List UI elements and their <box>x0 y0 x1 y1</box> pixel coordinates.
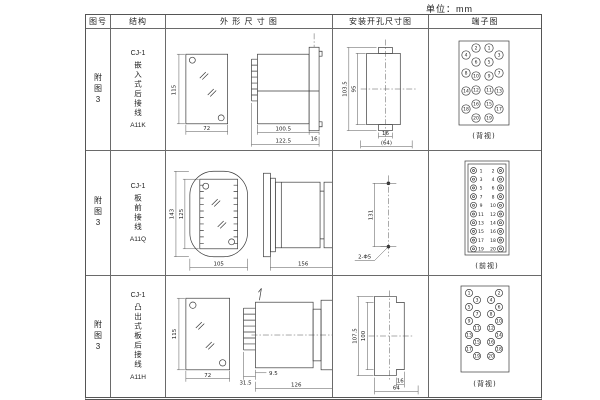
row1-structure-text: 嵌入式后接线 <box>132 61 143 118</box>
terminal-number: 3 <box>480 177 483 183</box>
dim-label: 16 <box>382 131 389 137</box>
row3-terminal-cell: 1 2 3 4 5 6 7 8 9 10 11 12 13 14 15 16 1… <box>429 276 541 397</box>
terminal-number: 11 <box>474 326 480 332</box>
dim-label: 9.5 <box>269 371 278 377</box>
row3-code: A11H <box>130 374 146 381</box>
terminal-number: 17 <box>466 347 472 353</box>
dim-label: 103.5 <box>342 81 348 97</box>
dim-label: 16 <box>397 379 404 385</box>
dim-label: 64 <box>393 385 400 391</box>
terminal-number: 19 <box>486 115 492 121</box>
dim-label: 95 <box>351 85 357 92</box>
row2-outline-cell: 143 125 105 156 110 <box>166 151 333 276</box>
terminal-number: 10 <box>496 319 502 325</box>
header-terminal: 端子图 <box>429 15 541 29</box>
terminal-number: 16 <box>473 101 479 107</box>
terminal-number: 1 <box>488 45 491 51</box>
terminal-number: 17 <box>496 106 502 112</box>
dim-label: 115 <box>172 329 178 339</box>
row2-terminal-drawing: 1 3 5 7 9 11 13 15 17 19 2 4 6 8 10 12 1… <box>429 151 541 276</box>
dim-label: 131 <box>369 209 375 219</box>
terminal-number: 4 <box>465 52 468 58</box>
terminal-number: 4 <box>492 177 495 183</box>
dim-label: 126 <box>291 383 302 389</box>
terminal-number: 1 <box>468 291 471 297</box>
terminal-number: 16 <box>490 229 496 235</box>
terminal-number: 9 <box>488 73 491 79</box>
terminal-number: 3 <box>476 298 479 304</box>
dim-label: 125 <box>179 208 185 218</box>
terminal-number: 6 <box>498 305 501 311</box>
dim-label: 31.5 <box>239 381 251 387</box>
row3-structure-text: 凸出式板后接线 <box>133 303 144 370</box>
terminal-number: 4 <box>490 298 493 304</box>
dim-label: 2-Φ5 <box>358 254 371 260</box>
dim-label: 100.5 <box>275 126 291 132</box>
row2-structure-cell: CJ-1 板前接线 A11Q <box>111 151 166 276</box>
terminal-number: 14 <box>496 333 502 339</box>
row2-figure-label: 附图3 <box>93 196 104 230</box>
row2-structure-text: 板前接线 <box>132 194 143 232</box>
terminal-number: 18 <box>490 237 496 243</box>
row2-code: A11Q <box>130 236 146 243</box>
row2-model: CJ-1 <box>131 183 146 190</box>
dim-label: 143 <box>169 208 175 219</box>
row2-figure-cell: 附图3 <box>86 151 111 276</box>
row1-outline-cell: 115 72 100.5 16 122.5 <box>166 29 333 151</box>
row2-mounting-drawing: 131 2-Φ5 <box>333 151 428 276</box>
terminal-number: 5 <box>480 185 483 191</box>
terminal-number: 13 <box>496 88 502 94</box>
dim-label: 107.5 <box>352 328 358 344</box>
row1-model: CJ-1 <box>131 50 146 57</box>
terminal-number: 12 <box>473 87 479 93</box>
row3-terminal-drawing: 1 2 3 4 5 6 7 8 9 10 11 12 13 14 15 16 1… <box>429 276 541 397</box>
header-outline: 外 形 尺 寸 图 <box>166 15 333 29</box>
terminal-number: 16 <box>488 340 494 346</box>
row3-mounting-drawing: 107.5 100 16 64 <box>333 276 428 397</box>
terminal-number: 6 <box>492 185 495 191</box>
dim-label: 72 <box>203 125 210 131</box>
row1-outline-drawing: 115 72 100.5 16 122.5 <box>166 29 332 151</box>
terminal-number: 8 <box>492 194 495 200</box>
row3-model: CJ-1 <box>131 292 146 299</box>
terminal-number: 10 <box>473 73 479 79</box>
header-structure: 结构 <box>111 15 166 29</box>
terminal-number: 15 <box>474 340 480 346</box>
terminal-number: 10 <box>490 203 496 209</box>
terminal-number: 19 <box>478 246 484 252</box>
terminal-number: 1 <box>480 168 483 174</box>
terminal-number: 8 <box>465 70 468 76</box>
terminal-number: 5 <box>468 305 471 311</box>
terminal-number: 9 <box>468 319 471 325</box>
terminal-number: 6 <box>475 59 478 65</box>
terminal-number: 2 <box>492 168 495 174</box>
terminal-number: 7 <box>480 194 483 200</box>
dimension-table: 图号 结构 外 形 尺 寸 图 安装开孔尺寸图 端子图 附图3 CJ-1 嵌入式… <box>85 14 542 400</box>
row2-terminal-cell: 1 3 5 7 9 11 13 15 17 19 2 4 6 8 10 12 1… <box>429 151 541 276</box>
row1-terminal-drawing: 1 2 3 4 5 6 7 8 9 10 11 12 13 14 15 16 1… <box>429 29 541 151</box>
terminal-number: 8 <box>490 312 493 318</box>
terminal-number: 20 <box>488 354 494 360</box>
row3-figure-cell: 附图3 <box>86 276 111 397</box>
terminal-number: 2 <box>498 291 501 297</box>
dim-label: 156 <box>298 261 309 267</box>
dim-label: 105 <box>213 261 223 267</box>
header-mounting: 安装开孔尺寸图 <box>333 15 429 29</box>
dim-label: 115 <box>171 84 177 94</box>
terminal-number: 12 <box>488 326 494 332</box>
row1-code: A11K <box>130 122 145 129</box>
terminal-number: 9 <box>480 203 483 209</box>
terminal-number: 11 <box>478 211 484 217</box>
row3-mounting-cell: 107.5 100 16 64 <box>333 276 429 397</box>
row1-figure-cell: 附图3 <box>86 29 111 151</box>
datasheet-page: 单位：mm 图号 结构 外 形 尺 寸 图 安装开孔尺寸图 端子图 附图3 CJ… <box>0 0 600 400</box>
terminal-number: 7 <box>476 312 479 318</box>
row1-terminal-cell: 1 2 3 4 5 6 7 8 9 10 11 12 13 14 15 16 1… <box>429 29 541 151</box>
view-label: (背视) <box>473 379 496 388</box>
dim-label: 72 <box>204 373 211 379</box>
dim-label: 16 <box>311 136 318 142</box>
row2-outline-drawing: 143 125 105 156 110 <box>166 151 332 276</box>
dim-label: 100 <box>361 330 367 341</box>
terminal-number: 20 <box>490 246 496 252</box>
row3-outline-drawing: 115 72 31.5 9.5 126 <box>166 276 332 397</box>
dim-label: (64) <box>381 140 392 146</box>
terminal-number: 20 <box>473 115 479 121</box>
terminal-number: 18 <box>463 106 469 112</box>
terminal-number: 3 <box>498 52 501 58</box>
row3-figure-label: 附图3 <box>93 320 104 354</box>
row1-figure-label: 附图3 <box>93 73 104 107</box>
terminal-number: 14 <box>490 220 496 226</box>
row1-structure-cell: CJ-1 嵌入式后接线 A11K <box>111 29 166 151</box>
terminal-number: 5 <box>488 59 491 65</box>
terminal-number: 14 <box>463 88 469 94</box>
terminal-number: 11 <box>486 87 492 93</box>
terminal-number: 2 <box>475 45 478 51</box>
row2-mounting-cell: 131 2-Φ5 <box>333 151 429 276</box>
terminal-number: 12 <box>490 211 496 217</box>
row3-outline-cell: 115 72 31.5 9.5 126 <box>166 276 333 397</box>
row3-structure-cell: CJ-1 凸出式板后接线 A11H <box>111 276 166 397</box>
view-label: (前视) <box>475 261 498 270</box>
dim-label: 122.5 <box>275 138 291 144</box>
terminal-number: 15 <box>486 101 492 107</box>
terminal-number: 15 <box>478 229 484 235</box>
row1-mounting-drawing: 103.5 95 16 (64) <box>333 29 428 151</box>
terminal-number: 18 <box>496 347 502 353</box>
row1-mounting-cell: 103.5 95 16 (64) <box>333 29 429 151</box>
terminal-number: 13 <box>466 333 472 339</box>
terminal-number: 19 <box>474 354 480 360</box>
terminal-number: 13 <box>478 220 484 226</box>
view-label: (背视) <box>472 131 495 140</box>
header-figure-no: 图号 <box>86 15 111 29</box>
terminal-number: 7 <box>498 70 501 76</box>
terminal-number: 17 <box>478 237 484 243</box>
